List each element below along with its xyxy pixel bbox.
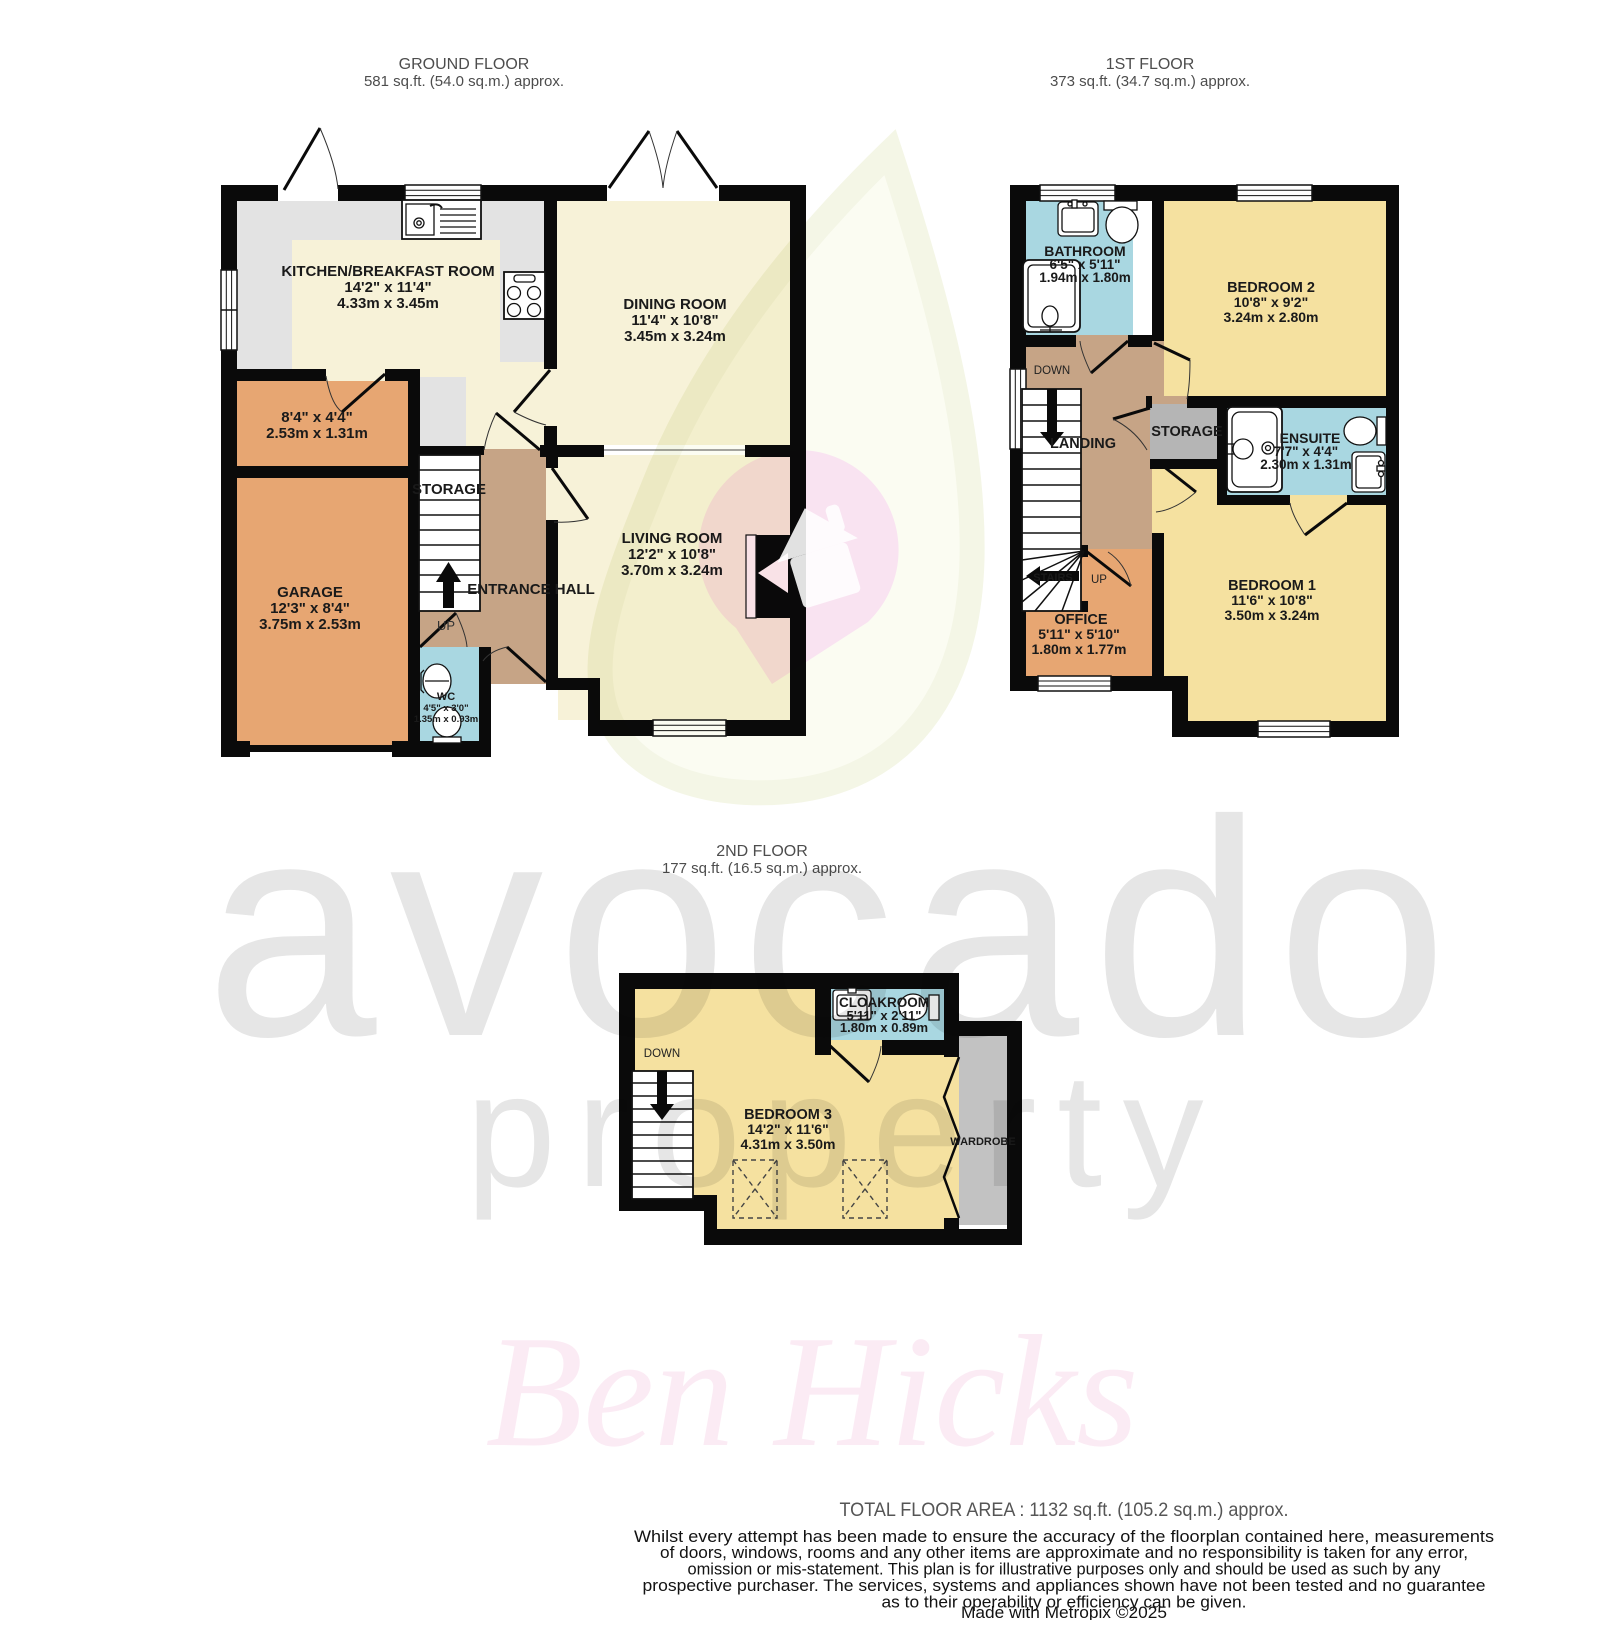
svg-text:prospective purchaser. The ser: prospective purchaser. The services, sys… xyxy=(643,1577,1486,1595)
svg-text:GROUND FLOOR: GROUND FLOOR xyxy=(399,56,530,73)
svg-text:373 sq.ft. (34.7 sq.m.) approx: 373 sq.ft. (34.7 sq.m.) approx. xyxy=(1050,73,1250,90)
svg-text:581 sq.ft. (54.0 sq.m.) approx: 581 sq.ft. (54.0 sq.m.) approx. xyxy=(364,73,564,90)
svg-text:10'8" x 9'2": 10'8" x 9'2" xyxy=(1234,294,1308,310)
svg-text:of doors, windows, rooms and a: of doors, windows, rooms and any other i… xyxy=(660,1544,1468,1562)
svg-text:STAIRS: STAIRS xyxy=(1033,572,1073,584)
svg-text:14'2" x 11'4": 14'2" x 11'4" xyxy=(344,279,431,296)
svg-text:3.24m x 2.80m: 3.24m x 2.80m xyxy=(1224,309,1319,325)
svg-text:KITCHEN/BREAKFAST ROOM: KITCHEN/BREAKFAST ROOM xyxy=(281,263,494,280)
svg-text:3.50m x 3.24m: 3.50m x 3.24m xyxy=(1225,607,1320,623)
svg-text:STORAGE: STORAGE xyxy=(412,481,486,498)
svg-text:UP: UP xyxy=(1091,574,1107,586)
svg-text:STORAGE: STORAGE xyxy=(1151,424,1223,440)
svg-text:1.94m x 1.80m: 1.94m x 1.80m xyxy=(1039,270,1131,285)
svg-text:2.53m x 1.31m: 2.53m x 1.31m xyxy=(266,425,368,442)
svg-text:12'3" x 8'4": 12'3" x 8'4" xyxy=(270,600,350,617)
svg-text:WC: WC xyxy=(437,691,455,703)
svg-text:5'11" x 5'10": 5'11" x 5'10" xyxy=(1038,626,1119,642)
svg-text:TOTAL FLOOR AREA : 1132 sq.ft.: TOTAL FLOOR AREA : 1132 sq.ft. (105.2 sq… xyxy=(840,1499,1289,1521)
svg-text:omission or mis-statement. Thi: omission or mis-statement. This plan is … xyxy=(688,1561,1442,1579)
svg-text:4'5" x 3'0": 4'5" x 3'0" xyxy=(423,703,468,714)
svg-text:3.75m x 2.53m: 3.75m x 2.53m xyxy=(259,616,361,633)
svg-text:LANDING: LANDING xyxy=(1050,436,1116,452)
svg-text:1ST FLOOR: 1ST FLOOR xyxy=(1106,56,1195,73)
svg-text:DOWN: DOWN xyxy=(1034,365,1070,377)
svg-text:3.45m x 3.24m: 3.45m x 3.24m xyxy=(624,328,726,345)
svg-text:1.80m x 1.77m: 1.80m x 1.77m xyxy=(1032,641,1127,657)
svg-text:8'4" x 4'4": 8'4" x 4'4" xyxy=(281,409,352,426)
svg-text:1.35m x 0.93m: 1.35m x 0.93m xyxy=(414,714,478,725)
svg-text:4.33m x 3.45m: 4.33m x 3.45m xyxy=(337,295,439,312)
svg-text:11'4" x 10'8": 11'4" x 10'8" xyxy=(631,312,718,329)
svg-text:Made with Metropix ©2025: Made with Metropix ©2025 xyxy=(961,1604,1167,1620)
svg-text:DINING ROOM: DINING ROOM xyxy=(623,296,726,313)
svg-text:GARAGE: GARAGE xyxy=(277,584,343,601)
svg-text:ENTRANCE HALL: ENTRANCE HALL xyxy=(467,581,595,598)
svg-text:property: property xyxy=(466,1040,1224,1221)
svg-text:Ben Hicks: Ben Hicks xyxy=(485,1302,1138,1480)
svg-text:11'6" x 10'8": 11'6" x 10'8" xyxy=(1231,592,1312,608)
svg-text:UP: UP xyxy=(437,618,455,633)
svg-text:2.30m x 1.31m: 2.30m x 1.31m xyxy=(1260,457,1352,472)
